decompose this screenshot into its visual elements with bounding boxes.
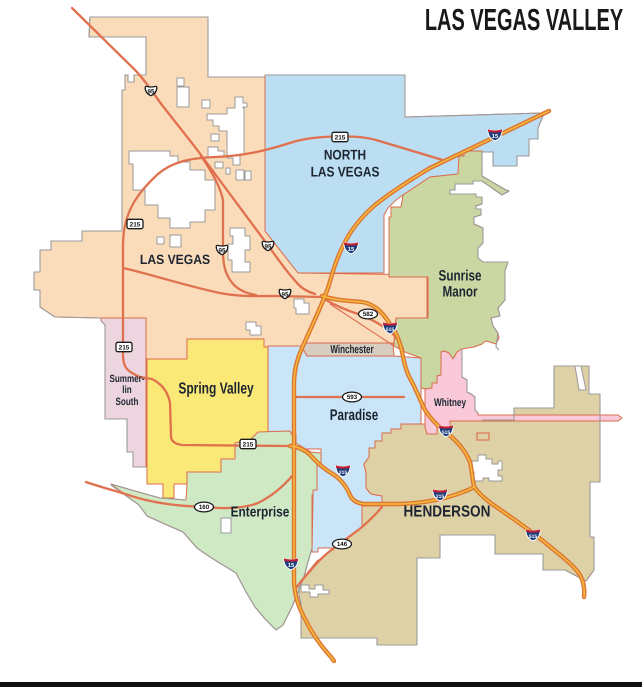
svg-text:95: 95 bbox=[147, 88, 155, 95]
svg-text:160: 160 bbox=[199, 504, 210, 511]
svg-text:215: 215 bbox=[339, 470, 348, 476]
svg-text:515: 515 bbox=[442, 430, 451, 436]
svg-text:215: 215 bbox=[243, 441, 254, 448]
svg-text:215: 215 bbox=[436, 494, 445, 500]
svg-text:95: 95 bbox=[264, 243, 272, 250]
svg-text:515: 515 bbox=[386, 327, 395, 333]
svg-text:146: 146 bbox=[337, 541, 348, 548]
svg-text:215: 215 bbox=[130, 221, 141, 228]
svg-text:95: 95 bbox=[281, 291, 289, 298]
svg-text:95: 95 bbox=[218, 247, 226, 254]
svg-text:15: 15 bbox=[348, 247, 355, 253]
svg-text:593: 593 bbox=[347, 394, 358, 401]
svg-text:15: 15 bbox=[288, 563, 295, 569]
svg-text:215: 215 bbox=[335, 134, 346, 141]
svg-text:215: 215 bbox=[119, 344, 130, 351]
svg-text:582: 582 bbox=[363, 311, 374, 318]
svg-text:15: 15 bbox=[492, 134, 499, 140]
svg-text:515: 515 bbox=[529, 534, 538, 540]
